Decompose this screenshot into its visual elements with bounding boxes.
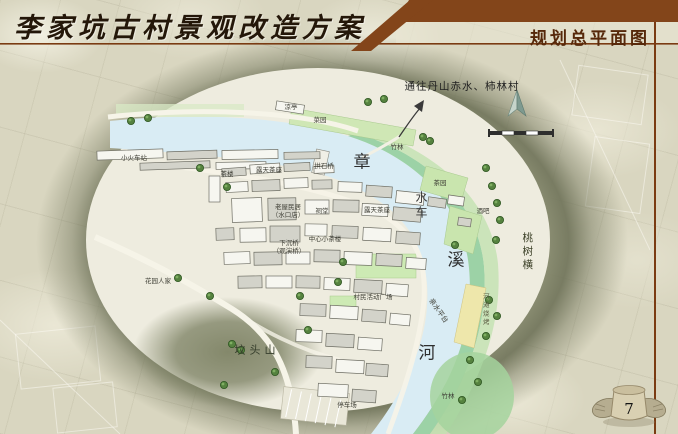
tree-icon [458,396,465,403]
tree-icon [474,378,481,385]
building [305,200,329,214]
building [284,162,310,171]
tree-icon [482,164,489,171]
header-brown-band [396,0,678,22]
building [366,363,389,377]
building [238,276,262,288]
building [224,252,250,265]
tree-icon [380,95,387,102]
tree-icon [334,278,341,285]
winged-stone-emblem: 7 [592,378,666,430]
tree-icon [296,292,303,299]
building [336,359,365,373]
building [268,198,296,220]
building [252,180,280,192]
tree-icon [206,292,213,299]
tree-icon [419,133,426,140]
tree-icon [174,274,181,281]
building [254,252,282,265]
header-subtitle: 规划总平面图 [470,24,650,49]
building [333,200,359,212]
building [312,180,332,189]
building [270,226,300,242]
building [250,163,281,174]
building [314,166,334,174]
tree-icon [496,216,503,223]
tree-icon [364,98,371,105]
tree-icon [237,346,244,353]
building [314,250,340,262]
tree-icon [485,296,492,303]
tree-icon [144,114,151,121]
building [300,304,326,317]
tree-icon [223,183,230,190]
tree-icon [493,312,500,319]
building [395,191,424,206]
building [266,276,292,288]
building [306,356,332,369]
tree-icon [220,381,227,388]
tree-icon [127,117,134,124]
tree-icon [488,182,495,189]
tree-icon [304,326,311,333]
site-plan-map [0,0,678,434]
tree-icon [492,236,499,243]
tree-icon [493,199,500,206]
building [392,207,421,222]
building [458,217,472,227]
slide-canvas: 李家坑古村景观改造方案 规划总平面图 通往丹山赤水、柿林村 小火车站 凉亭 菜园… [0,0,678,434]
building [167,150,217,160]
building [305,224,327,236]
building [284,152,320,160]
building [284,178,308,189]
tree-icon [482,332,489,339]
tree-icon [426,137,433,144]
building [447,195,464,206]
building [326,333,355,347]
right-rule-line [654,22,656,434]
building [354,279,383,293]
building [232,197,263,222]
building [286,252,310,264]
building [386,283,409,297]
page-number: 7 [624,400,634,418]
building [330,305,359,319]
building [376,253,403,266]
building [97,149,163,160]
building [362,309,387,323]
tree-icon [196,164,203,171]
building [390,313,411,326]
building [352,389,377,403]
building [296,276,320,288]
building [396,231,421,245]
building [406,257,427,269]
building [222,150,278,160]
building [222,167,246,177]
tree-icon [451,241,458,248]
building [363,227,392,241]
building [344,252,372,266]
building [358,337,383,351]
tree-icon [228,340,235,347]
building [240,228,266,242]
tree-icon [339,258,346,265]
building [366,185,393,198]
tree-icon [466,356,473,363]
building [338,182,362,193]
tree-icon [271,368,278,375]
building [209,176,220,202]
building [332,226,358,239]
page-title: 李家坑古村景观改造方案 [14,6,366,45]
building [362,203,389,216]
building [216,228,234,241]
building [318,383,349,398]
